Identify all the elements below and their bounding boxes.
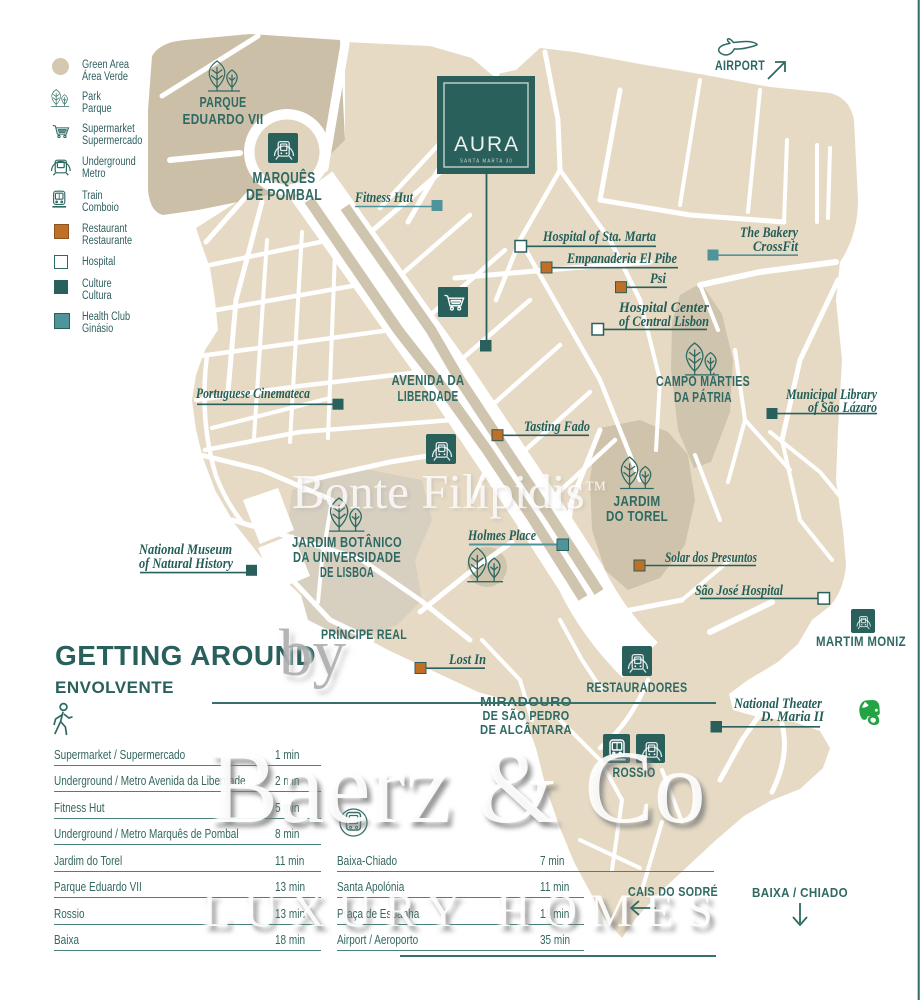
- svg-text:São José Hospital: São José Hospital: [695, 583, 783, 599]
- svg-text:PARQUE: PARQUE: [200, 95, 247, 111]
- svg-text:of Natural History: of Natural History: [139, 556, 233, 572]
- svg-text:BAIXA / CHIADO: BAIXA / CHIADO: [752, 885, 848, 900]
- svg-text:Tasting Fado: Tasting Fado: [524, 419, 590, 435]
- svg-text:DE SÃO PEDRO: DE SÃO PEDRO: [483, 708, 570, 723]
- svg-text:D. Maria II: D. Maria II: [760, 709, 825, 725]
- svg-text:CrossFit: CrossFit: [753, 239, 799, 255]
- svg-text:EDUARDO VII: EDUARDO VII: [183, 112, 264, 128]
- svg-text:RESTAURADORES: RESTAURADORES: [587, 680, 688, 695]
- svg-text:DA PÁTRIA: DA PÁTRIA: [674, 389, 732, 406]
- svg-text:of São Lázaro: of São Lázaro: [808, 400, 877, 416]
- svg-text:of Central Lisbon: of Central Lisbon: [619, 314, 709, 330]
- svg-text:DE LISBOA: DE LISBOA: [320, 565, 374, 581]
- svg-text:Portuguese Cinemateca: Portuguese Cinemateca: [196, 386, 310, 402]
- svg-text:Holmes Place: Holmes Place: [467, 528, 536, 544]
- svg-text:AURA: AURA: [454, 132, 520, 156]
- svg-text:AVENIDA DA: AVENIDA DA: [392, 373, 465, 389]
- svg-text:Lost In: Lost In: [448, 652, 486, 668]
- svg-text:LIBERDADE: LIBERDADE: [398, 389, 459, 405]
- svg-text:DA UNIVERSIDADE: DA UNIVERSIDADE: [293, 550, 401, 566]
- svg-text:CAMPO MÁRTIES: CAMPO MÁRTIES: [656, 373, 750, 390]
- svg-text:JARDIM BOTÂNICO: JARDIM BOTÂNICO: [292, 533, 402, 551]
- svg-text:DO TOREL: DO TOREL: [606, 508, 668, 525]
- svg-text:DE POMBAL: DE POMBAL: [246, 187, 322, 204]
- svg-text:Hospital of Sta. Marta: Hospital of Sta. Marta: [542, 229, 656, 245]
- svg-text:AIRPORT: AIRPORT: [715, 58, 765, 73]
- svg-text:Fitness Hut: Fitness Hut: [354, 190, 414, 206]
- svg-text:Psi: Psi: [650, 271, 666, 287]
- svg-text:Solar dos Presuntos: Solar dos Presuntos: [665, 550, 757, 566]
- svg-text:MARTIM MONIZ: MARTIM MONIZ: [816, 634, 906, 649]
- svg-text:Empanaderia El Pibe: Empanaderia El Pibe: [566, 251, 677, 267]
- svg-text:MARQUÊS: MARQUÊS: [253, 169, 316, 187]
- svg-text:SANTA MARTA 30: SANTA MARTA 30: [460, 159, 513, 165]
